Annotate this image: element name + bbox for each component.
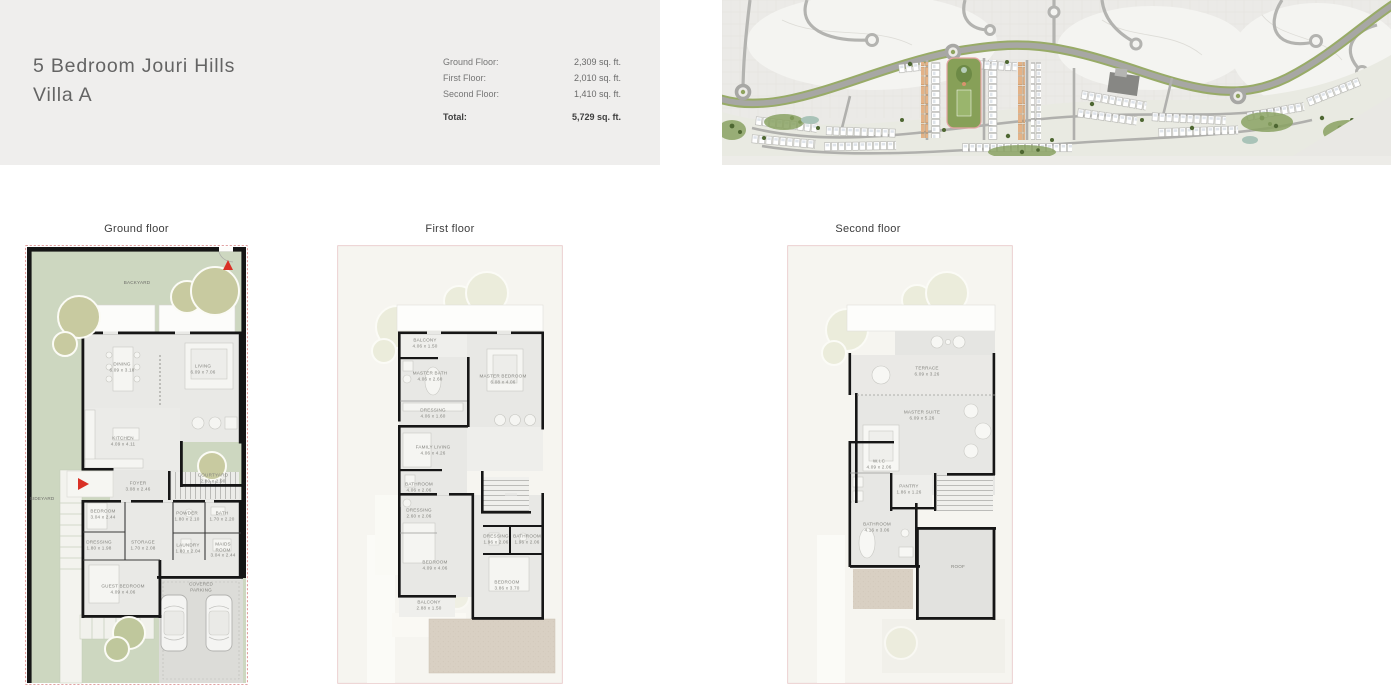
brochure-page: 5 Bedroom Jouri Hills Villa A Ground Flo… xyxy=(0,0,1400,691)
ground-floor-drawing xyxy=(25,245,248,685)
page-title: 5 Bedroom Jouri Hills Villa A xyxy=(33,52,235,110)
area-row-ground: Ground Floor: 2,309 sq. ft. xyxy=(443,54,621,70)
second-floor-drawing xyxy=(787,245,1013,684)
map-central-park xyxy=(947,58,981,128)
area-value: 1,410 sq. ft. xyxy=(574,86,621,102)
area-value: 2,309 sq. ft. xyxy=(574,54,621,70)
area-summary: Ground Floor: 2,309 sq. ft. First Floor:… xyxy=(443,54,621,125)
master-plan-map-drawing xyxy=(722,0,1391,165)
area-row-total: Total: 5,729 sq. ft. xyxy=(443,109,621,125)
total-label: Total: xyxy=(443,109,467,125)
page-title-line2: Villa A xyxy=(33,81,235,110)
header: 5 Bedroom Jouri Hills Villa A Ground Flo… xyxy=(0,0,660,165)
first-floor-drawing xyxy=(337,245,563,684)
terrace-deck xyxy=(429,619,555,673)
second-floor-title: Second floor xyxy=(755,223,981,235)
second-floor-plan: Second floor xyxy=(787,245,1013,684)
terrace-deck xyxy=(853,569,913,609)
ground-floor-title: Ground floor xyxy=(25,223,248,235)
covered-parking xyxy=(159,578,243,683)
page-title-line1: 5 Bedroom Jouri Hills xyxy=(33,52,235,81)
area-label: Ground Floor: xyxy=(443,54,499,70)
area-row-first: First Floor: 2,010 sq. ft. xyxy=(443,70,621,86)
first-floor-plan: First floor xyxy=(337,245,563,684)
stairs xyxy=(937,475,993,511)
first-floor-title: First floor xyxy=(337,223,563,235)
car-icon xyxy=(161,595,187,651)
ground-floor-plan: Ground floor xyxy=(25,245,248,685)
area-value: 2,010 sq. ft. xyxy=(574,70,621,86)
area-row-second: Second Floor: 1,410 sq. ft. xyxy=(443,86,621,102)
master-plan-map xyxy=(722,0,1391,165)
car-icon xyxy=(206,595,232,651)
total-value: 5,729 sq. ft. xyxy=(572,109,621,125)
roof-area xyxy=(918,529,995,619)
area-label: Second Floor: xyxy=(443,86,499,102)
area-label: First Floor: xyxy=(443,70,486,86)
